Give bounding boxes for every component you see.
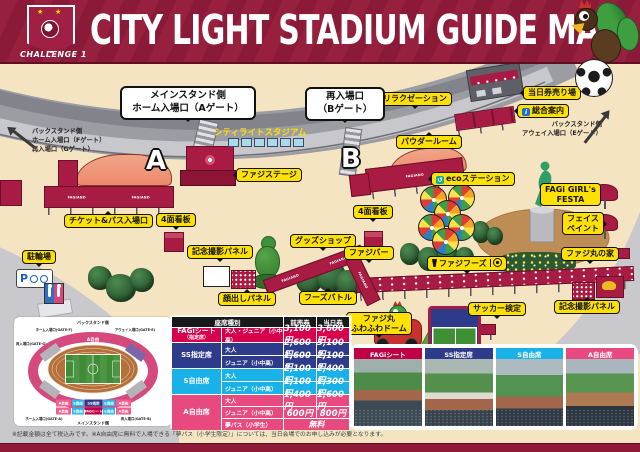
gate-a-tents: FAGIANO FAGIANO [44,186,174,208]
male-restroom-icon [45,284,54,303]
label-eco-station: ↺ecoステーション [431,172,515,186]
page-title: CITY LIGHT STADIUM GUIDE MAP [90,6,620,54]
bike-wheel-icon [40,275,48,283]
challenge-badge: CHALLENGE 1 [20,50,87,59]
stadium-guide-poster: シティライトスタジアム FAGIANO FAGIANO FAGIANO [0,0,640,452]
photo-label-s: S自由席 [496,348,564,359]
photo-label-ss: SS指定席 [425,348,493,359]
label-face-in-hole-panel: 顔出しパネル [218,292,276,306]
photo-s-view [496,359,564,426]
label-soccer-test: サッカー検定 [468,302,526,316]
fajimaru-house [596,276,624,298]
tent-brand-text: FAGIANO [68,195,86,199]
statue-head [541,162,550,171]
label-photo-panel-left: 記念撮影パネル [187,245,253,259]
price-table: 座席種別 前売券 当日券 FAGiシート（指定席） 大人・ジュニア（小中高） 3… [172,317,350,427]
bird-mascot [563,1,639,105]
seat-view-photo-strip: FAGiシート SS指定席 S自由席 A自由席 [350,344,638,430]
restroom-sign [44,283,64,304]
gate-e-label: アウェイ入場口(GATE-E) [115,327,156,332]
label-faji-foods: ファジフーズ [427,256,507,271]
label-face-paint: フェイス ペイント [562,212,604,235]
photo-fagi-view [354,359,422,426]
tent-brand-text: FAGIANO [132,195,150,199]
label-photo-panel-right: 記念撮影パネル [554,300,620,314]
soccer-ball-icon [575,59,613,97]
fg-gate-note: バックスタンド側 ホーム入場口（Fゲート） 再入場口（Gゲート） [32,128,105,154]
svg-text:S自由: S自由 [104,401,114,406]
main-stand-label: メインスタンド側 [77,420,109,426]
photo-panel-board [203,266,230,287]
gate-g-label: 再入場口(GATE-G) [16,341,47,346]
label-fuwafuwa-dome: ファジ丸 ふわふわドーム [346,312,412,335]
female-restroom-icon [54,284,63,303]
info-icon: i [522,108,530,116]
label-powder-room: パウダールーム [396,135,462,149]
plate-icon [493,258,502,267]
tent-brand-text: FAGIANO [281,273,299,283]
statue-pedestal [530,210,554,242]
gate-b-bubble: 再入場口 （Bゲート） [305,87,385,121]
stadium-windows [228,138,304,147]
label-foods-battle: フーズバトル [299,291,357,305]
label-faji-foods-text: ファジフーズ [439,259,487,268]
seat-map-diagram: バックスタンド側 ホーム入場口(GATE-F) アウェイ入場口(GATE-E) … [14,317,172,425]
seat-map-panel: バックスタンド側 ホーム入場口(GATE-F) アウェイ入場口(GATE-E) … [14,317,172,426]
back-stand-label: バックスタンド側 [77,319,109,325]
bottom-bar [0,443,640,452]
label-info-text: 総合案内 [532,106,564,115]
photo-label-a: A自由席 [566,348,634,359]
label-bicycle-parking: 駐輪場 [22,250,56,264]
billboard-cube-left [164,232,184,252]
svg-text:FAGiシート: FAGiシート [85,410,103,414]
tree [400,243,420,265]
gate-f-label: ホーム入場口(GATE-F) [36,327,73,332]
svg-text:A自由: A自由 [59,401,69,406]
label-ticket-pass-gate: チケット&パス入場口 [64,214,153,228]
label-eco-text: ecoステーション [446,174,510,183]
tree [130,268,154,292]
tree [487,227,503,245]
seat-photo: FAGiシート [354,348,422,426]
label-fajimaru-house: ファジ丸の家 [561,247,619,261]
label-billboard-left: 4面看板 [156,213,196,227]
photo-a-view [566,359,634,426]
bike-wheel-icon [30,275,38,283]
club-crest-logo: ★ ★ [27,5,75,53]
mascot-crest [579,0,591,8]
svg-text:S自由: S自由 [104,409,114,414]
tent-brand-text: FAGIANO [357,271,368,289]
photo-ss-view [425,359,493,426]
gate-a-label: ホーム入場口(GATE-A) [25,416,63,421]
svg-text:SS指定: SS指定 [87,401,100,406]
fork-icon [490,259,492,267]
top-band-label: A自由 [87,336,100,343]
header-banner: ★ ★ CHALLENGE 1 CITY LIGHT STADIUM GUIDE… [0,0,640,64]
svg-text:A自由: A自由 [119,401,129,406]
tent-brand-text: FAGIANO [406,172,425,178]
mascot-pupil [583,14,588,19]
gate-b-letter: B [341,144,361,174]
price-disclaimer: ※記載金額は全て税込みです。※A自由席に無料で入場できる「夢パス（小学生限定）」… [12,429,386,438]
seat-photo: SS指定席 [425,348,493,426]
recycle-icon: ↺ [436,176,444,184]
label-fagi-girls-festa: FAGi GIRL's FESTA [540,183,601,206]
parking-p-icon: P [20,273,28,284]
gate-a-bubble: メインスタンド側 ホーム入場口（Aゲート） [120,86,256,120]
star-icon: ★ [55,8,61,16]
seat-photo: S自由席 [496,348,564,426]
crest-bird-icon [41,20,59,38]
statue-pedestal-top [530,207,554,214]
drink-cup-icon [432,259,437,267]
seat-photo: A自由席 [566,348,634,426]
label-relaxation: リラクゼーション [378,92,452,106]
svg-text:S自由: S自由 [73,401,83,406]
ticket-booth-sign [470,69,519,85]
label-info: i総合案内 [517,104,569,118]
gate-a-letter: A [146,146,166,176]
label-faji-stage: ファジステージ [236,168,302,182]
left-edge-tent [0,180,22,206]
faji-stage-floor [180,170,236,186]
gate-b-label: 再入場口(GATE-B) [121,416,152,421]
label-billboard-mid: 4面看板 [353,205,393,219]
row-a-seat: A自由席 大人 1,400円 1,600円 ジュニア（小中高） 600円 800… [172,394,350,430]
svg-text:A自由: A自由 [59,409,69,414]
label-faji-bar: ファジバー [344,246,394,260]
gate-b-kiosk-tent [349,173,372,197]
svg-text:A自由: A自由 [119,409,129,414]
parasol [432,228,459,255]
svg-text:S自由: S自由 [73,409,83,414]
stadium-name-sign: シティライトスタジアム [214,126,306,138]
photo-label-fagi: FAGiシート [354,348,422,359]
star-icon: ★ [37,8,43,16]
